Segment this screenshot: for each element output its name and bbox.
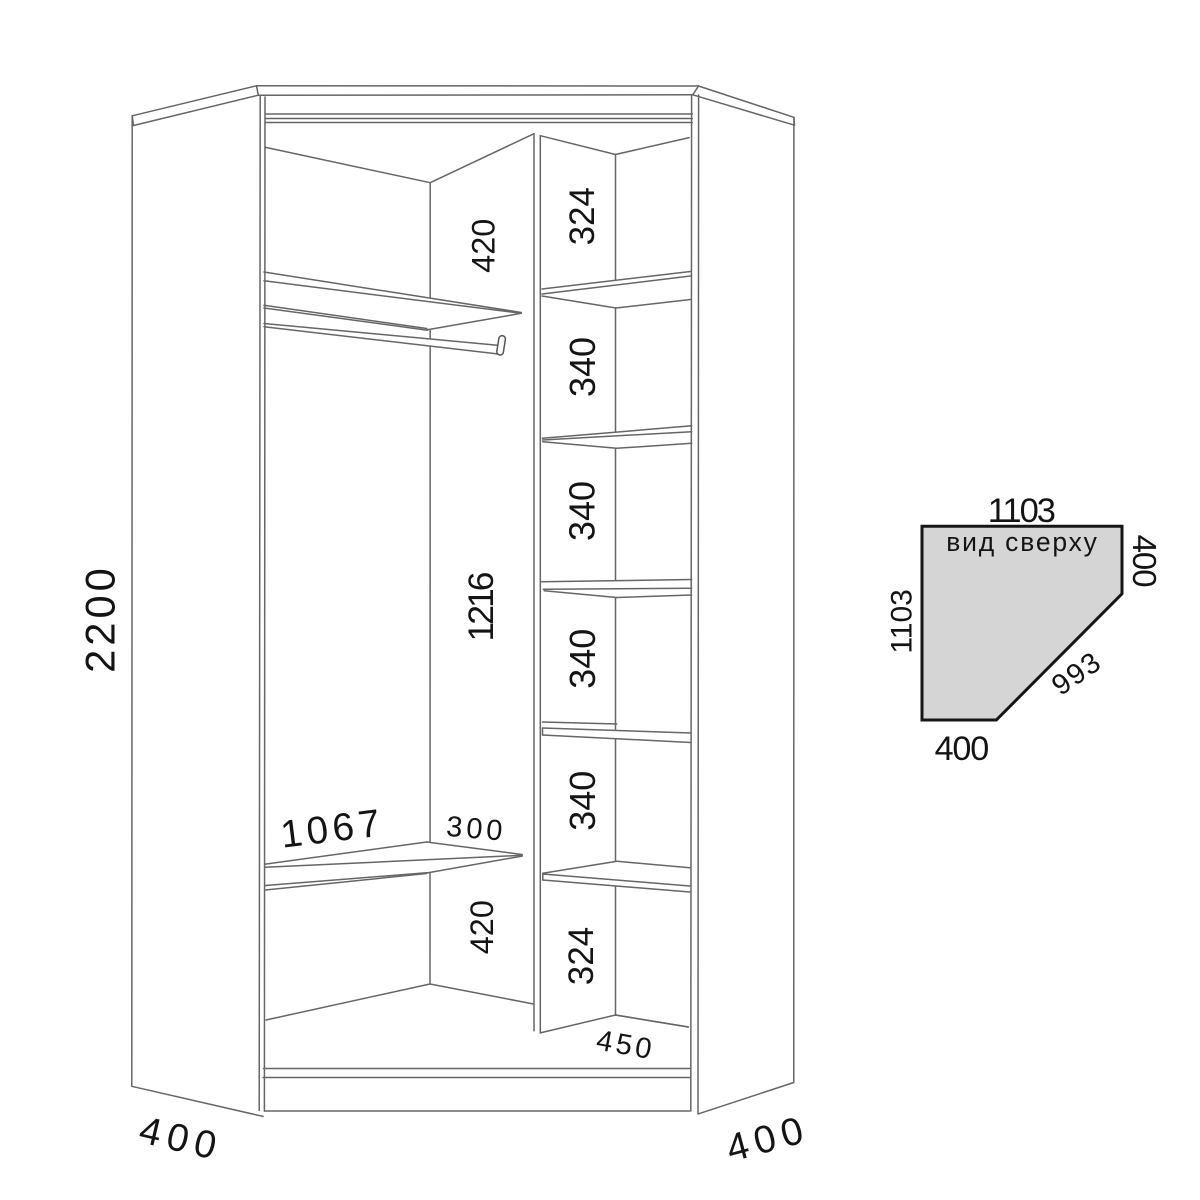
svg-text:340: 340 — [562, 771, 603, 831]
svg-text:400: 400 — [1126, 535, 1163, 588]
svg-text:2200: 2200 — [76, 564, 123, 673]
svg-text:420: 420 — [464, 900, 500, 954]
svg-text:300: 300 — [445, 811, 508, 848]
svg-text:вид сверху: вид сверху — [946, 527, 1098, 557]
svg-text:324: 324 — [562, 927, 601, 985]
svg-text:400: 400 — [935, 730, 989, 768]
svg-text:340: 340 — [562, 337, 603, 397]
svg-text:340: 340 — [562, 629, 603, 689]
svg-text:1103: 1103 — [988, 492, 1055, 530]
svg-text:1103: 1103 — [886, 589, 919, 654]
svg-text:420: 420 — [466, 219, 502, 273]
svg-text:1216: 1216 — [461, 572, 501, 641]
svg-text:324: 324 — [563, 187, 602, 245]
svg-text:340: 340 — [562, 481, 603, 541]
